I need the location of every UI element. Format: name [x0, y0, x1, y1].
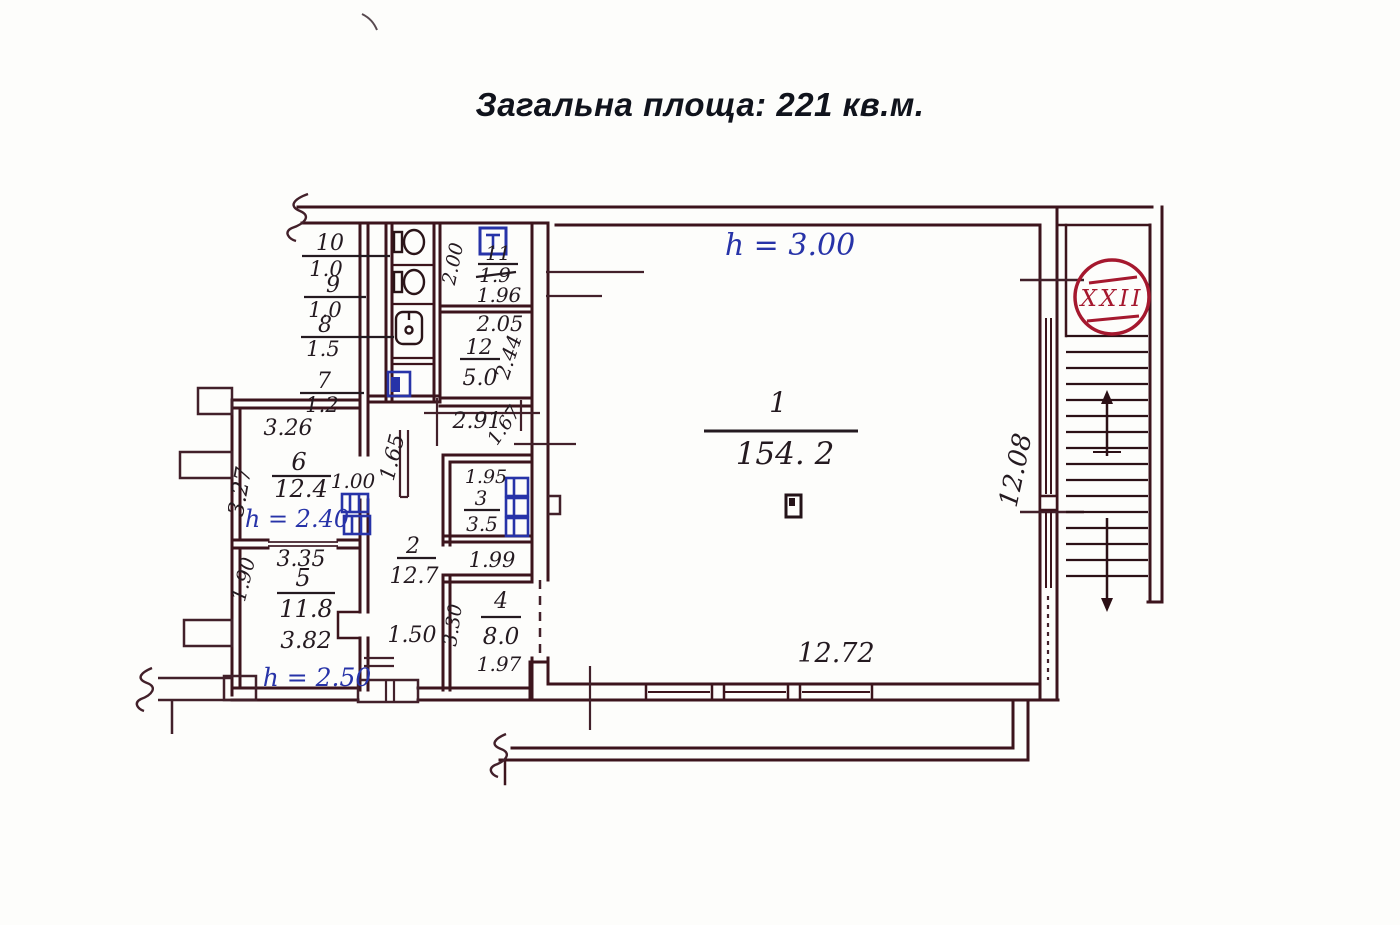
hall-column — [786, 495, 801, 517]
room-5-number: 5 — [295, 564, 310, 592]
dim-corridor-depth: 1.65 — [375, 432, 410, 483]
room-6-area: 12.4 — [274, 475, 327, 503]
room-7-area: 1.2 — [305, 393, 338, 417]
room-8-number: 8 — [318, 313, 332, 338]
room-1-number: 1 — [769, 386, 787, 419]
dim-room5-bottom: 3.82 — [280, 628, 331, 654]
dim-hall-bottom: 12.72 — [797, 638, 874, 669]
room-3-area: 3.5 — [466, 512, 498, 536]
stair-direction-down-arrow-icon — [1101, 598, 1113, 612]
dim-room12-width: 2.05 — [476, 312, 524, 336]
dim-stair-side: 12.08 — [994, 431, 1039, 510]
dim-room3-top: 1.95 — [465, 466, 507, 488]
stamp-floor-number: XXII — [1079, 286, 1144, 312]
dim-room4-left: 3.30 — [439, 603, 467, 648]
dim-room11-depth: 2.00 — [438, 241, 469, 288]
room-7-number: 7 — [317, 369, 331, 394]
toilet-icon — [394, 230, 424, 254]
floor-plan: XXII — [0, 0, 1400, 925]
room-3-number: 3 — [475, 486, 488, 510]
floor-stamp: XXII — [1075, 260, 1149, 334]
room-8-area: 1.5 — [306, 337, 339, 361]
room-11-number: 11 — [485, 241, 510, 265]
stair-direction-up-arrow-icon — [1101, 390, 1113, 404]
hall-height-note: h = 3.00 — [725, 228, 855, 263]
room-6-number: 6 — [291, 448, 306, 476]
room-4-area: 8.0 — [483, 624, 520, 650]
scanned-floor-plan-page: Загальна площа: 221 кв.м. — [0, 0, 1400, 925]
room-10-number: 10 — [316, 231, 344, 256]
room-2-number: 2 — [405, 534, 420, 559]
washbasin-icon — [396, 312, 422, 344]
dim-room4-bottom: 1.97 — [477, 652, 522, 676]
dim-room2-door: 1.50 — [388, 623, 437, 648]
room-12-number: 12 — [466, 335, 493, 359]
toilet-icon — [394, 270, 424, 294]
dim-room6-door: 1.00 — [331, 469, 376, 493]
dim-room11-width: 1.96 — [477, 283, 522, 307]
dim-room6-top: 3.26 — [264, 416, 313, 441]
room-4-number: 4 — [493, 589, 508, 614]
room-5-area: 11.8 — [279, 595, 332, 623]
staircase — [1066, 336, 1148, 612]
dim-room3-bottom: 1.99 — [469, 548, 516, 572]
room6-height-note: h = 2.40 — [245, 505, 349, 533]
dim-room12-depth: 2.44 — [490, 332, 527, 383]
room-2-area: 12.7 — [390, 564, 439, 589]
room5-height-note: h = 2.50 — [263, 663, 372, 692]
room-9-number: 9 — [326, 273, 340, 298]
room-1-area: 154. 2 — [736, 436, 835, 472]
radiator-icon — [506, 478, 528, 536]
